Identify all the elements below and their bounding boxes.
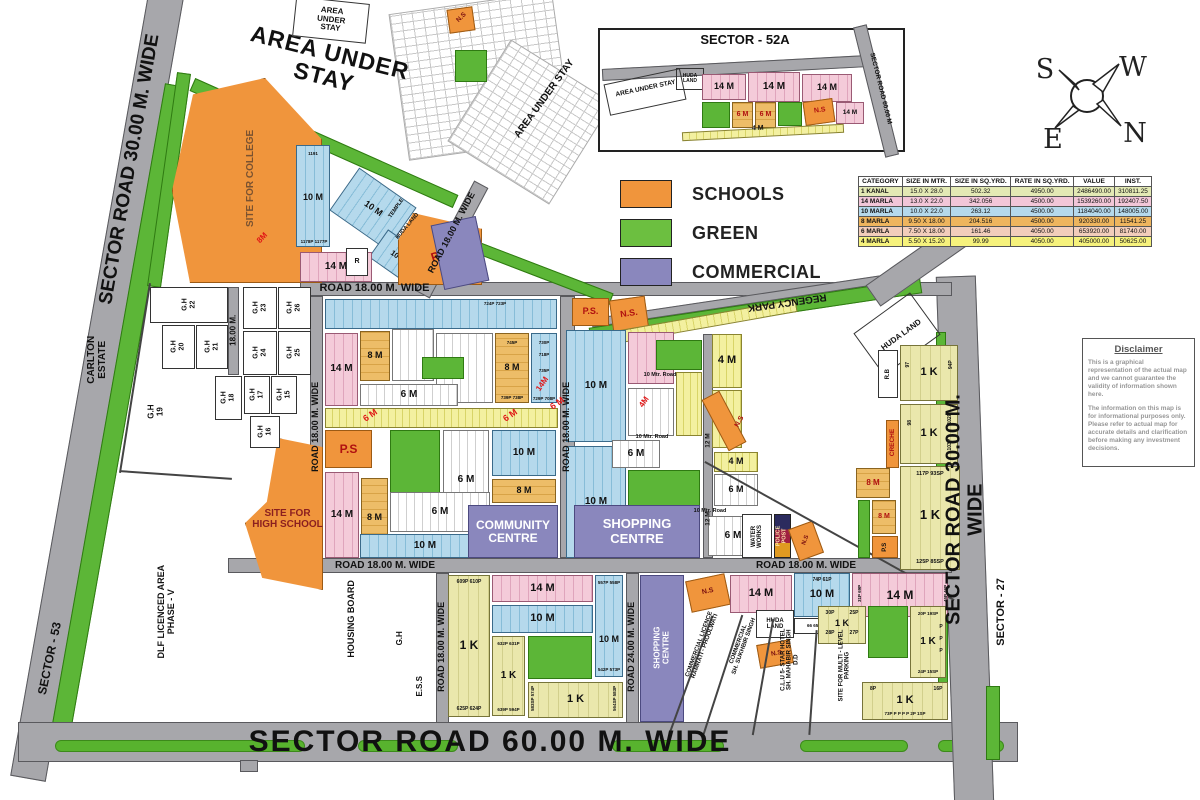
legend-item-commercial: COMMERCIAL — [620, 258, 850, 286]
map-label-text: N.S — [814, 106, 827, 115]
rate-table-row: 4 MARLA5.50 X 15.2099.994050.00405000.00… — [859, 237, 1152, 247]
map-shape — [778, 102, 802, 126]
map-label: P.S. — [572, 298, 609, 326]
map-shape — [595, 575, 623, 677]
rate-table-row: 10 MARLA10.0 X 22.0263.124500.001184040.… — [859, 207, 1152, 217]
map-label-text: 1191 — [308, 152, 318, 157]
map-label-text: 745P — [507, 341, 518, 346]
map-label-text: 97 — [906, 362, 911, 368]
map-label-text: 739P 738P — [501, 396, 523, 401]
rate-table-cell: 310811.25 — [1114, 187, 1151, 197]
rate-table-cell: 1184040.00 — [1074, 207, 1115, 217]
gh-18: G.H 18 — [215, 376, 242, 420]
map-label-text: ROAD 18.00 M. WIDE — [319, 283, 429, 295]
map-label: 1191 — [298, 150, 328, 158]
map-label-text: 6 M — [549, 396, 567, 413]
map-label: 14 M — [325, 472, 359, 558]
map-label: 8M — [252, 232, 274, 244]
legend-label: COMMERCIAL — [692, 262, 821, 283]
map-label: 6 M — [545, 398, 571, 410]
housing-board-label: HOUSING BOARD — [308, 612, 396, 626]
map-label-text: 24P 15SP — [918, 670, 938, 675]
map-label: N.S — [810, 106, 830, 116]
map-label: 4 M — [712, 334, 742, 388]
map-label: 8P — [866, 686, 880, 694]
rate-table-body: 1 KANAL15.0 X 28.0502.324950.002486490.0… — [859, 187, 1152, 247]
rate-table-cell: 4 MARLA — [859, 237, 903, 247]
map-label: ROAD 18.00 M. WIDE — [736, 559, 876, 573]
compass-rose: W S E N — [1015, 38, 1165, 156]
map-label: ROAD 18.00 M. WIDE — [402, 226, 502, 240]
rate-table-cell: 1539260.00 — [1074, 197, 1115, 207]
map-label-text: 20P 19SP — [918, 612, 938, 617]
dlf-area-label: DLF LICENCED AREA PHASE - V — [112, 598, 222, 626]
map-label: 28P — [820, 630, 840, 638]
map-label-text: N.S — [801, 534, 811, 546]
carlton-estate-label: CARLTON ESTATE — [72, 340, 124, 380]
map-label-text: 1 K — [896, 695, 913, 707]
map-label: 14M — [530, 378, 556, 390]
rate-table-cell: 15.0 X 28.0 — [902, 187, 950, 197]
rate-table-cell: 148005.00 — [1114, 207, 1151, 217]
map-label: 583SP 574P — [514, 692, 554, 704]
map-label: 12 M — [690, 436, 726, 446]
map-label-text: 18.00 M. — [230, 314, 239, 345]
map-label-text: 30P — [826, 611, 835, 616]
map-label-text: POLICE POST — [776, 526, 788, 546]
legend: SCHOOLSGREENCOMMERCIAL — [620, 180, 850, 297]
sector-27-label-text: SECTOR - 27 — [996, 578, 1008, 646]
legend-label: GREEN — [692, 223, 759, 244]
map-label-text: 14 M — [331, 510, 353, 521]
map-label-text: 14 M — [887, 589, 914, 602]
map-label-text: 12 M — [704, 434, 711, 448]
gh-25: G.H 25 — [278, 331, 311, 375]
map-label-text: 8M — [256, 231, 270, 245]
map-label-text: 6 M — [401, 390, 418, 401]
map-label: 6 M — [498, 410, 524, 422]
r-plot-text: R — [354, 258, 359, 266]
map-label: 14 M — [730, 575, 792, 613]
map-label: 730P — [532, 340, 556, 347]
schools-swatch — [620, 180, 672, 208]
gh-26-text: G.H 26 — [287, 302, 302, 314]
gh-22-text: G.H 22 — [181, 299, 196, 311]
map-label-text: 10 M — [513, 448, 535, 459]
map-shape — [702, 102, 730, 128]
map-label-text: 74P 61P — [812, 578, 831, 583]
map-label-text: R.B — [885, 369, 891, 379]
map-label-text: 25P — [850, 611, 859, 616]
rate-table: CATEGORYSIZE IN MTR.SIZE IN SQ.YRD.RATE … — [858, 176, 1152, 247]
map-label-text: 117P 93SP — [916, 472, 943, 478]
area-under-stay-diag: AREA UNDER STAY — [488, 92, 603, 106]
map-label-text: ROAD 24.00 M. WIDE — [627, 602, 637, 692]
rate-table-cell: 81740.00 — [1114, 227, 1151, 237]
rate-table-col: INST. — [1114, 177, 1151, 187]
map-label: ROAD 18.00 M. WIDE — [315, 559, 455, 573]
map-label: 745P — [498, 340, 526, 347]
rate-table-cell: 11541.25 — [1114, 217, 1151, 227]
map-label-text: 4 M — [728, 457, 743, 467]
map-label: 8 M — [492, 479, 556, 503]
map-label: 73P P P P P 2P 1SP — [862, 710, 948, 718]
map-label: 10 Mtr. Road — [630, 372, 690, 380]
gh-17-text: G.H 17 — [249, 389, 264, 401]
multi-level-parking-label-text: SITE FOR MULTI - LEVEL PARKING — [839, 629, 852, 701]
sector-53-label: SECTOR - 53 — [0, 650, 110, 666]
map-label-text: P.S — [882, 543, 888, 552]
map-label-text: 8 M — [866, 479, 879, 488]
map-label: 6 M — [360, 384, 458, 406]
sector-road-left-label: SECTOR ROAD 30.00 M. WIDE — [0, 158, 270, 180]
map-label-text: P.S. — [583, 307, 599, 317]
map-label-text: 28P — [826, 631, 835, 636]
map-label: AREA UNDER STAY — [298, 2, 364, 38]
map-shape — [676, 372, 702, 436]
compass-arrow-n — [1097, 100, 1121, 126]
compass-s: S — [1036, 54, 1055, 85]
inset-title-text: SECTOR - 52A — [700, 33, 789, 47]
site-for-high-school-label: SITE FOR HIGH SCHOOL — [240, 506, 335, 534]
map-label: 724P 723P — [470, 300, 520, 308]
sector-27-label: SECTOR - 27 — [950, 604, 1054, 620]
map-label-text: 735P — [539, 369, 550, 374]
disclaimer-title: Disclaimer — [1088, 344, 1189, 355]
map-label-text: 4 M — [718, 355, 736, 367]
map-label-text: 6 M — [502, 408, 520, 425]
rate-table-cell: 4500.00 — [1011, 207, 1074, 217]
rate-table-row: 8 MARLA9.50 X 18.00204.5164500.00920330.… — [859, 217, 1152, 227]
map-label-text: 4 M — [752, 125, 764, 133]
map-label-text: 10 M — [810, 589, 834, 601]
inset-title: SECTOR - 52A — [660, 32, 830, 48]
map-label-text: 14 M — [763, 82, 785, 93]
gh-20-text: G.H 20 — [171, 341, 186, 353]
map-label-text: 6 M — [760, 111, 772, 119]
median — [800, 740, 908, 752]
shopping-centre-text: SHOPPING CENTRE — [603, 517, 672, 545]
map-label-text: 6 M — [458, 475, 475, 486]
map-label: 4 M — [746, 124, 770, 134]
gh-17: G.H 17 — [244, 376, 270, 414]
gh-23: G.H 23 — [243, 287, 277, 329]
rate-table-cell: 10 MARLA — [859, 207, 903, 217]
rate-table-col: RATE IN SQ.YRD. — [1011, 177, 1074, 187]
map-label-text: 125P 85SP — [916, 560, 944, 566]
map-shape — [656, 340, 702, 370]
community-centre-text: COMMUNITY CENTRE — [476, 519, 550, 545]
disclaimer-body-1: This is a graphical representation of th… — [1088, 359, 1189, 399]
map-label-text: 14 M — [530, 583, 554, 595]
map-label: E.S.S — [408, 680, 432, 692]
map-label: 24P 15SP — [908, 668, 948, 676]
map-label: HUDA LAND — [678, 70, 702, 88]
gh-19-label-text: G.H 19 — [147, 405, 164, 419]
map-label: 564SP 583P — [596, 692, 636, 704]
map-label-text: N.S — [734, 415, 746, 429]
map-label-text: 14 M — [817, 83, 837, 93]
map-label: 6 M — [358, 410, 384, 422]
map-label: 14 M — [836, 102, 864, 124]
map-label-text: 632P 631P — [497, 642, 519, 647]
dlf-area-label-text: DLF LICENCED AREA PHASE - V — [157, 565, 176, 659]
map-label: ROAD 18.00 M. WIDE — [392, 640, 492, 654]
rate-table-cell: 161.46 — [951, 227, 1011, 237]
map-label-text: WATER WORKS — [751, 525, 764, 548]
map-label-text: 1 K — [920, 367, 937, 379]
map-label-text: ROAD 18.00 M. WIDE — [335, 561, 435, 572]
map-label: 739P 738P — [493, 395, 531, 402]
map-shape — [868, 606, 908, 658]
plot-strip-10m — [325, 299, 557, 329]
map-label: 12 M — [690, 514, 726, 524]
map-label: N.S — [450, 12, 472, 24]
map-label-text: 14 M — [330, 364, 352, 375]
map-label: P.S — [325, 430, 372, 468]
gh-18-text: G.H 18 — [221, 392, 236, 404]
map-label: TEMPLE — [382, 204, 412, 214]
map-label-text: 730P — [539, 341, 550, 346]
rate-table-cell: 7.50 X 18.00 — [902, 227, 950, 237]
rate-table-cell: 4050.00 — [1011, 227, 1074, 237]
map-label-text: 542P 573P — [598, 668, 620, 673]
map-label-text: 1 K — [835, 619, 849, 629]
site-for-high-school-label-text: SITE FOR HIGH SCHOOL — [252, 509, 323, 531]
map-label: 30P — [820, 610, 840, 618]
map-label-text: 10 M — [303, 193, 323, 203]
map-label-text: 6 M — [362, 408, 380, 425]
rate-table-cell: 5.50 X 15.20 — [902, 237, 950, 247]
rate-table-cell: 8 MARLA — [859, 217, 903, 227]
map-label: 14 M — [702, 74, 746, 100]
map-label: 74P 61P — [794, 577, 850, 585]
map-label: 14 M — [325, 333, 358, 406]
rate-table-cell: 13.0 X 22.0 — [902, 197, 950, 207]
map-label-text: N.S. — [620, 308, 639, 320]
map-label: N.S — [698, 586, 718, 598]
map-label-text: 8 M — [504, 363, 519, 373]
map-label-text: 1 K — [920, 637, 936, 648]
map-shape — [120, 470, 232, 480]
rate-table-cell: 502.32 — [951, 187, 1011, 197]
map-label-text: N.S — [701, 587, 714, 597]
map-label-text: 94P — [948, 361, 953, 370]
map-label: 25P — [844, 610, 864, 618]
road-stub — [240, 760, 258, 772]
legend-item-schools: SCHOOLS — [620, 180, 850, 208]
rate-table-cell: 653920.00 — [1074, 227, 1115, 237]
map-label: 639P 594P — [492, 706, 525, 714]
map-label: 609P 610P — [448, 579, 490, 587]
map-label-text: 12 M — [704, 512, 711, 526]
map-label-text: 583SP 574P — [532, 685, 537, 710]
map-label: 10 Mtr. Road — [622, 434, 682, 442]
map-label-text: 6 M — [725, 531, 742, 542]
map-label-text: 8P — [870, 687, 876, 692]
green-patch-corner — [986, 686, 1000, 760]
map-label-text: E.S.S — [416, 676, 425, 696]
rate-table-cell: 192407.50 — [1114, 197, 1151, 207]
map-label-text: 98 — [908, 420, 913, 426]
rate-table-col: SIZE IN SQ.YRD. — [951, 177, 1011, 187]
map-label-text: 625P 624P — [457, 707, 482, 712]
map-label: 98 — [905, 418, 917, 428]
rate-table-cell: 2486490.00 — [1074, 187, 1115, 197]
map-label-text: 8 M — [367, 513, 382, 523]
map-label-text: ROAD 18.00 M. WIDE — [562, 382, 572, 472]
map-label: 8 M — [856, 468, 890, 498]
map-label-text: 10 M — [530, 613, 554, 625]
map-label-text: 6 M — [737, 111, 749, 119]
gh-25-text: G.H 25 — [287, 347, 302, 359]
map-label-text: 639P 594P — [497, 708, 519, 713]
compass-n: N — [1123, 118, 1147, 149]
compass-w: W — [1119, 52, 1147, 83]
map-label-text: P — [939, 649, 942, 654]
pink-14m-text: 14 M — [325, 262, 347, 273]
gh-19-label: G.H 19 — [140, 398, 172, 426]
map-label: 6 M — [612, 440, 660, 468]
map-label: 542P 573P — [593, 666, 625, 674]
map-label-text: 10 Mtr. Road — [644, 373, 677, 379]
map-label: WATER WORKS — [742, 526, 772, 546]
sector-road-right-label: SECTOR ROAD 30.00 M. WIDE — [825, 498, 1105, 522]
map-label-text: 1178P 1177P — [301, 240, 328, 245]
gh-20: G.H 20 — [162, 325, 195, 369]
map-label: 625P 624P — [448, 706, 490, 714]
map-label-text: 16P — [934, 687, 943, 692]
rate-table-header: CATEGORYSIZE IN MTR.SIZE IN SQ.YRD.RATE … — [859, 177, 1152, 187]
rate-table-row: 1 KANAL15.0 X 28.0502.324950.002486490.0… — [859, 187, 1152, 197]
map-label: 735P — [532, 368, 556, 375]
map-label: R.B — [880, 368, 896, 380]
map-label-text: ROAD 18.00 M. WIDE — [756, 561, 856, 572]
rate-table-col: CATEGORY — [859, 177, 903, 187]
map-label-text: 10 M — [585, 381, 607, 392]
map-label-text: 73P P P P P 2P 1SP — [884, 712, 925, 717]
housing-board-label-text: HOUSING BOARD — [347, 580, 357, 658]
rate-table-cell: 4950.00 — [1011, 187, 1074, 197]
rate-table-cell: 263.12 — [951, 207, 1011, 217]
top-green — [455, 50, 487, 82]
map-label-text: P.S — [340, 443, 358, 456]
map-label: 632P 631P — [492, 640, 525, 648]
map-label: 1 K — [495, 670, 522, 682]
map-label-text: 10 M — [414, 541, 436, 552]
rate-table-row: 14 MARLA13.0 X 22.0342.0564500.001539260… — [859, 197, 1152, 207]
disclaimer-box: Disclaimer This is a graphical represent… — [1082, 338, 1195, 467]
map-label-text: 564SP 583P — [614, 685, 619, 710]
rate-table-cell: 1 KANAL — [859, 187, 903, 197]
map-label: 10 M — [298, 192, 328, 203]
blue-10m-rot-a-text: 10 M — [362, 199, 384, 218]
gh-15-text: G.H 15 — [276, 389, 291, 401]
map-label: 16P — [930, 686, 946, 694]
map-label: 4M — [634, 396, 656, 408]
map-label-text: ROAD 18.00 M. WIDE — [311, 382, 321, 472]
rate-table-cell: 4500.00 — [1011, 197, 1074, 207]
legend-items: SCHOOLSGREENCOMMERCIAL — [620, 180, 850, 286]
map-label: 557P 558P — [593, 579, 625, 587]
map-label-text: CRECHE — [889, 429, 896, 456]
rate-table-cell: 10.0 X 22.0 — [902, 207, 950, 217]
sector-road-bottom-label-text: SECTOR ROAD 60.00 M. WIDE — [249, 726, 732, 758]
map-label-text: AREA UNDER STAY — [315, 6, 346, 35]
gh-21-text: G.H 21 — [204, 341, 219, 353]
map-label: 10 M — [492, 605, 593, 633]
map-label-text: 8 M — [516, 486, 531, 496]
inset-area-under-stay: AREA UNDER STAY — [606, 84, 686, 94]
map-label: P.S — [876, 542, 894, 552]
compass-arrow-s — [1059, 70, 1079, 90]
green-swatch — [620, 219, 672, 247]
map-label-text: ROAD 18.00 M. WIDE — [437, 602, 447, 692]
rate-table-cell: 920330.00 — [1074, 217, 1115, 227]
map-label-text: 6 M — [628, 449, 645, 460]
rate-table-cell: 9.50 X 18.00 — [902, 217, 950, 227]
map-label: 31P 69P — [846, 588, 876, 598]
compass-arrow-w — [1093, 64, 1119, 92]
map-label: 8 M — [360, 331, 390, 381]
map-shape — [422, 357, 464, 379]
rate-table-col: SIZE IN MTR. — [902, 177, 950, 187]
rate-table-cell: 204.516 — [951, 217, 1011, 227]
gh-24: G.H 24 — [243, 331, 277, 375]
map-label-text: 14 M — [714, 82, 734, 92]
community-centre: COMMUNITY CENTRE — [468, 505, 558, 558]
legend-label: SCHOOLS — [692, 184, 785, 205]
map-label: 94P — [944, 360, 958, 370]
gh-24-text: G.H 24 — [252, 347, 267, 359]
map-label: 1 K — [830, 618, 854, 629]
map-label: 1178P 1177P — [294, 238, 334, 246]
rate-table-cell: 405000.00 — [1074, 237, 1115, 247]
map-label-text: 8 M — [367, 351, 382, 361]
rate-table-cell: 99.99 — [951, 237, 1011, 247]
map-label: 14 M — [492, 575, 593, 602]
map-label-text: 10 Mtr. Road — [636, 435, 669, 441]
rate-table-cell: 4050.00 — [1011, 237, 1074, 247]
map-label-text: P — [939, 637, 942, 642]
rate-table-cell: 4500.00 — [1011, 217, 1074, 227]
carlton-estate-label-text: CARLTON ESTATE — [87, 336, 109, 384]
commercial-swatch — [620, 258, 672, 286]
map-label-text: 557P 558P — [598, 581, 620, 586]
disclaimer-body-2: The information on this map is for infor… — [1088, 405, 1189, 453]
map-label-text: 4M — [638, 395, 651, 409]
map-label: CRECHE — [874, 438, 912, 448]
compass-e: E — [1043, 124, 1063, 155]
map-label: ROAD 24.00 M. WIDE — [582, 640, 682, 654]
area-under-stay-main: AREA UNDER STAY — [212, 50, 442, 80]
rate-table-cell: 342.056 — [951, 197, 1011, 207]
rate-table-cell: 6 MARLA — [859, 227, 903, 237]
sector-road-bottom-label: SECTOR ROAD 60.00 M. WIDE — [180, 725, 800, 759]
gh-22: G.H 22 — [150, 287, 228, 323]
map-label-text: P — [939, 625, 942, 630]
map-label-text: 724P 723P — [484, 302, 506, 307]
map-label: ROAD 18.00 M. WIDE — [517, 420, 617, 434]
map-label-text: 6 M — [728, 485, 743, 495]
map-label-text: 1 K — [920, 428, 937, 440]
map-label-text: N.S — [455, 12, 468, 25]
map-label: 97 — [903, 360, 915, 370]
map-label-text: HUDA LAND — [683, 74, 697, 85]
rate-table-row: 6 MARLA7.50 X 18.00161.464050.00653920.0… — [859, 227, 1152, 237]
map-label: 18.00 M. — [204, 324, 264, 336]
rate-table-col: VALUE — [1074, 177, 1115, 187]
